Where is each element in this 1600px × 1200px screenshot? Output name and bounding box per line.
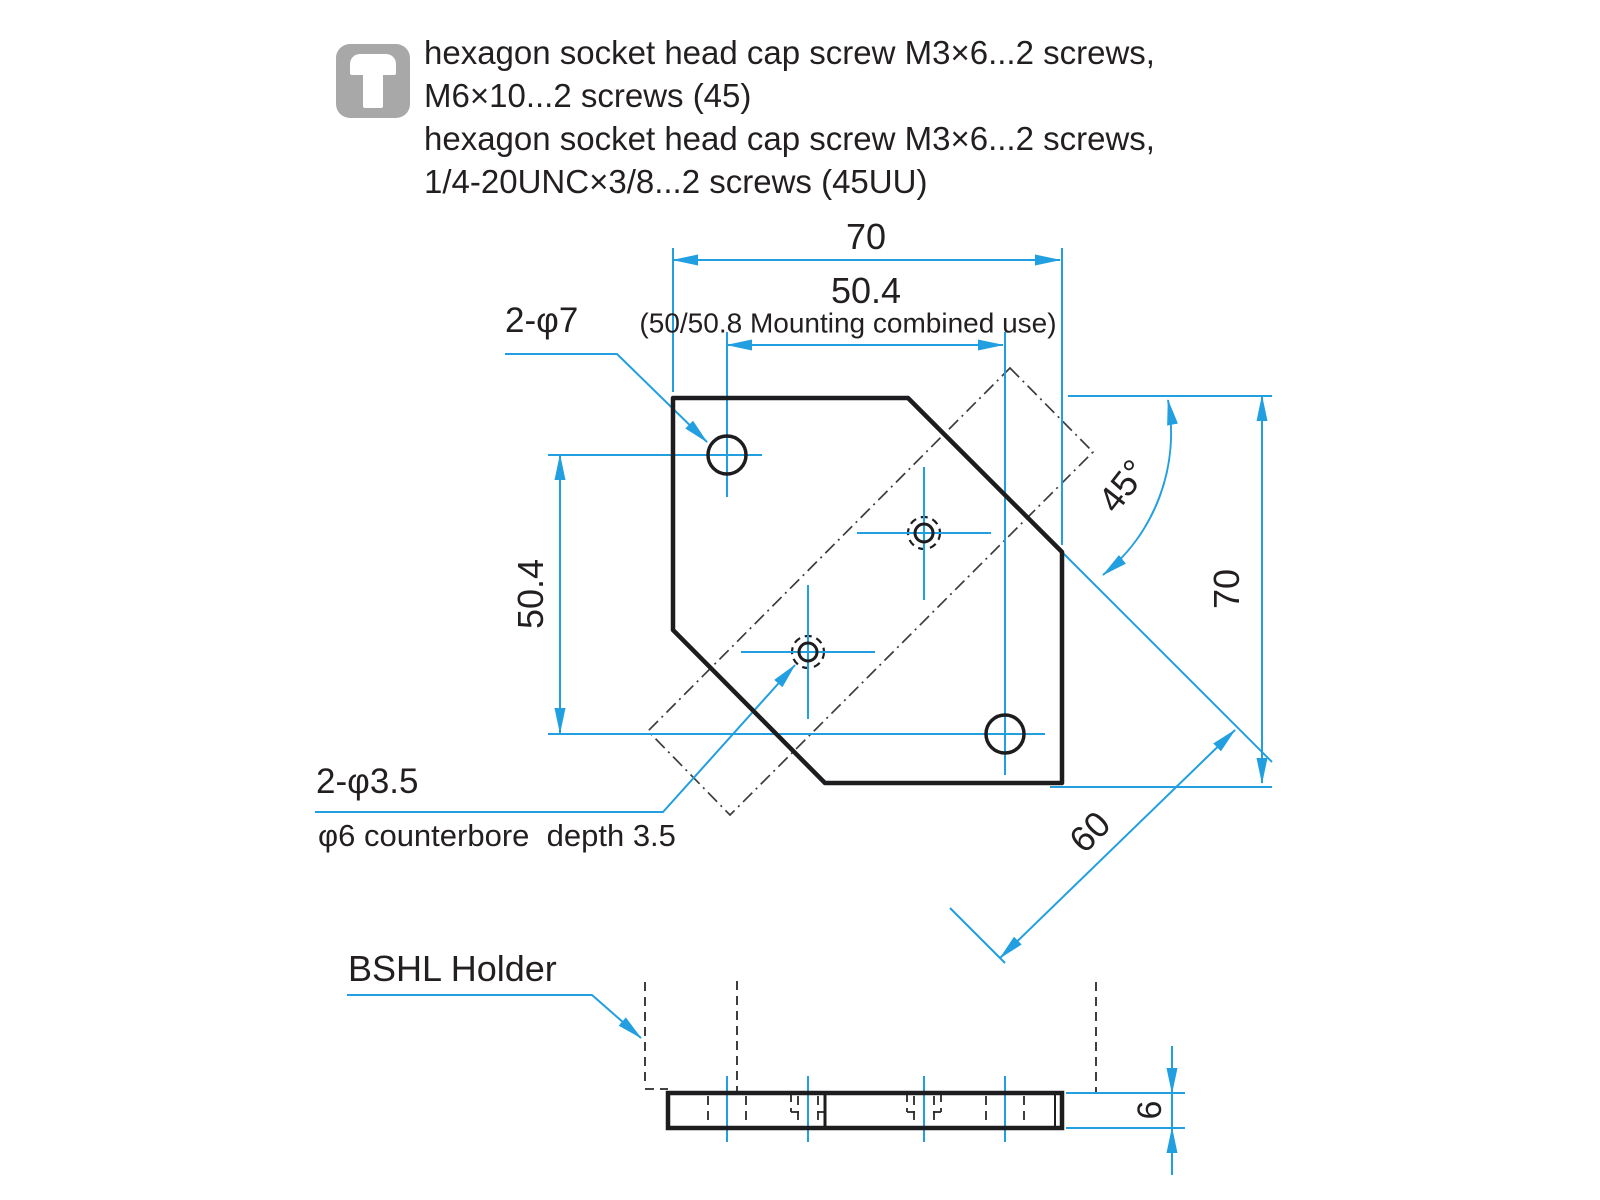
dim-text-mounting-note: (50/50.8 Mounting combined use) xyxy=(639,308,1056,337)
dim-text-height-70: 70 xyxy=(1208,569,1246,609)
dim-text-thickness-6: 6 xyxy=(1133,1101,1169,1120)
label-counterbore-note: φ6 counterbore depth 3.5 xyxy=(318,820,676,853)
part-name-label: BSHL Holder xyxy=(348,950,557,988)
leader-bshl-holder xyxy=(347,995,641,1038)
drawing-canvas xyxy=(0,0,1600,1200)
dimension-lines xyxy=(560,260,1262,1175)
dim-text-width-70: 70 xyxy=(846,218,886,256)
label-counterbore-holes: 2-φ3.5 xyxy=(316,764,418,801)
label-through-holes: 2-φ7 xyxy=(505,303,578,340)
technical-drawing-page: hexagon socket head cap screw M3×6...2 s… xyxy=(0,0,1600,1200)
extension-centerlines xyxy=(548,248,1272,1142)
hidden-projection-lines xyxy=(645,981,1096,1125)
dim-text-left-50-4: 50.4 xyxy=(512,559,550,629)
leader-lines xyxy=(315,354,795,1038)
dim-text-mounting-50-4: 50.4 xyxy=(831,272,901,310)
phantom-extrusion-outline xyxy=(648,368,1093,815)
dim-line-diagonal-60 xyxy=(1000,730,1235,958)
